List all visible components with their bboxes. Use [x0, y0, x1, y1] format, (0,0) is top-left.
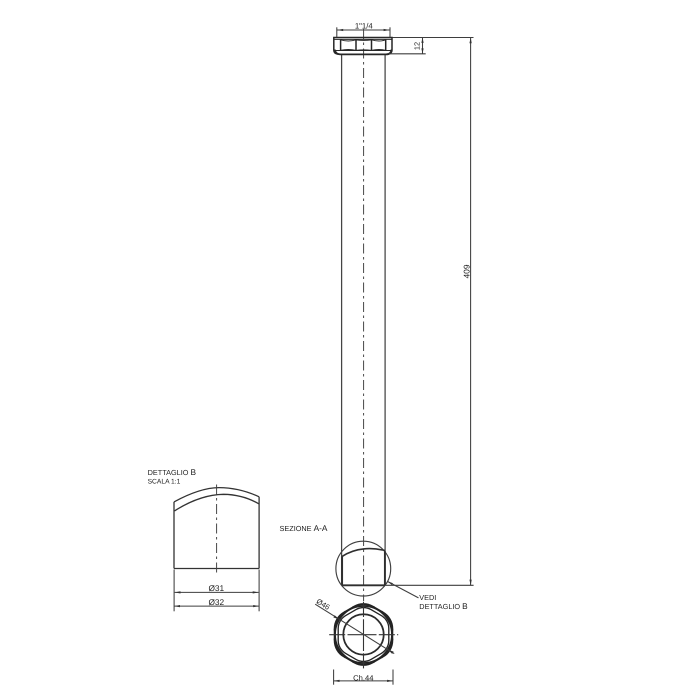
svg-text:409: 409	[462, 264, 472, 278]
svg-text:DETTAGLIO B: DETTAGLIO B	[148, 467, 197, 477]
svg-text:Ø32: Ø32	[208, 597, 224, 607]
svg-text:Ch.44: Ch.44	[353, 673, 373, 682]
svg-text:12: 12	[413, 42, 422, 50]
svg-text:VEDI: VEDI	[419, 593, 436, 602]
svg-text:SEZIONE A-A: SEZIONE A-A	[280, 523, 328, 533]
svg-text:1"1/4: 1"1/4	[355, 22, 374, 31]
svg-text:DETTAGLIO B: DETTAGLIO B	[419, 601, 468, 611]
svg-text:SCALA 1:1: SCALA 1:1	[148, 478, 181, 485]
svg-text:Ø46: Ø46	[315, 597, 332, 612]
svg-text:Ø31: Ø31	[208, 583, 224, 593]
